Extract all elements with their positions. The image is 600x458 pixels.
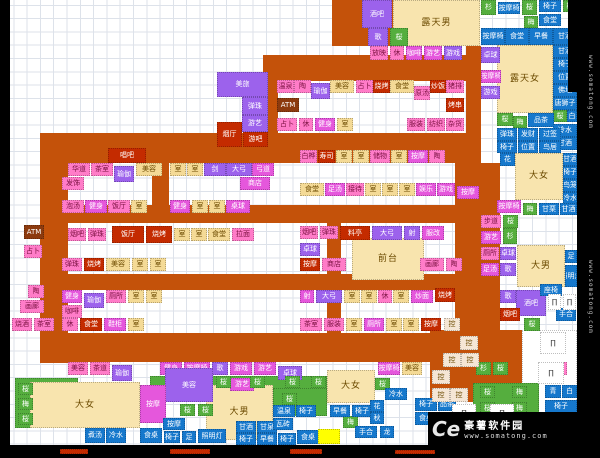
map-cell-占卜: 占卜 [24, 245, 42, 258]
map-cell-瓦砖: 瓦砖 [273, 418, 293, 430]
map-cell-厕所: 厕所 [106, 290, 126, 303]
map-cell-室: 室 [337, 118, 353, 131]
map-cell-梅: 梅 [513, 116, 527, 128]
map-cell-桜: 桜 [524, 318, 540, 331]
map-cell-桜: 桜 [480, 386, 495, 398]
map-cell-茶室: 茶室 [34, 318, 54, 331]
map-cell-画廊: 画廊 [420, 258, 444, 271]
map-cell-烟吧: 烟吧 [68, 228, 86, 241]
map-cell-寿司: 寿司 [318, 150, 335, 163]
map-cell-按摩椅: 按摩椅 [481, 70, 501, 83]
map-cell-华道: 华道 [68, 163, 90, 176]
map-cell-咖啡: 咖啡 [406, 46, 422, 60]
map-cell-椅子: 椅子 [164, 431, 180, 443]
map-cell-照明灯: 照明灯 [198, 429, 226, 443]
map-cell-弹珠: 弹珠 [88, 228, 106, 241]
map-cell-游戏: 游戏 [481, 86, 500, 99]
map-cell-桜: 桜 [503, 215, 518, 228]
map-cell-健身: 健身 [85, 200, 107, 213]
map-cell-大女: 大女 [30, 382, 140, 428]
map-cell-步道: 步道 [481, 215, 501, 228]
map-cell-剑: 剑 [204, 163, 226, 176]
map-cell-梅: 梅 [523, 203, 537, 215]
map-cell-椅子: 椅子 [539, 0, 561, 12]
map-cell-美旅: 美旅 [217, 72, 268, 97]
map-cell-唱吧: 唱吧 [108, 148, 146, 163]
map-cell-室: 室 [386, 318, 402, 331]
map-cell-烟吧: 烟吧 [300, 226, 318, 239]
map-cell-温泉: 温泉 [277, 80, 294, 93]
map-cell-咖啡: 咖啡 [62, 305, 82, 318]
map-cell-早餐: 早餐 [529, 28, 553, 45]
map-cell-食堂: 食堂 [505, 28, 529, 45]
frame-block [0, 0, 10, 458]
map-cell-足: 足 [565, 250, 577, 263]
map-cell-卓球: 卓球 [300, 243, 320, 256]
map-cell-R [395, 450, 435, 454]
map-cell-休: 休 [390, 46, 404, 60]
map-cell-游艺: 游艺 [254, 362, 276, 375]
map-cell-室: 室 [191, 228, 207, 241]
map-cell-发饰: 发饰 [62, 177, 84, 190]
map-cell-服装: 服装 [324, 318, 344, 331]
map-cell-娱乐: 娱乐 [416, 183, 436, 196]
map-cell-梅: 梅 [524, 16, 538, 28]
map-cell-厕所: 厕所 [364, 318, 384, 331]
map-cell-前台: 前台 [352, 238, 424, 280]
map-cell-室: 室 [209, 200, 225, 213]
map-cell-梅: 梅 [18, 398, 33, 410]
map-cell-画廊: 画廊 [20, 300, 44, 313]
map-cell-炒面: 炒面 [411, 290, 433, 303]
map-cell-桜: 桜 [250, 376, 265, 388]
watermark-url: www.somatong.com [464, 432, 547, 440]
map-cell-冷水: 冷水 [385, 388, 407, 400]
map-cell-游吧: 游吧 [243, 132, 268, 147]
map-cell-杉: 杉 [481, 0, 496, 15]
watermark-logo: Ce [432, 419, 460, 439]
side-watermark-url-bottom: www.somatong.com [587, 260, 594, 334]
map-cell-烧烤: 烧烤 [84, 258, 104, 271]
map-cell-室: 室 [131, 200, 147, 213]
map-cell-ATM: ATM [24, 225, 44, 239]
map-cell-健身: 健身 [62, 290, 82, 303]
map-cell-桜: 桜 [497, 113, 513, 126]
map-cell-足: 足 [182, 431, 196, 443]
map-cell-食堂: 食堂 [80, 318, 102, 331]
map-cell-室: 室 [146, 290, 162, 303]
map-cell-美容: 美容 [402, 362, 422, 375]
map-cell-按摩椅: 按摩椅 [378, 362, 400, 375]
map-cell-饭厅: 饭厅 [108, 200, 130, 213]
map-cell-白桦: 白桦 [300, 150, 317, 163]
map-cell-泡汤: 泡汤 [62, 200, 84, 213]
map-cell-按摩椅: 按摩椅 [497, 200, 521, 213]
map-cell-∏: ∏ [563, 294, 576, 310]
map-cell-室: 室 [391, 150, 407, 163]
map-cell-椅子: 椅子 [352, 405, 372, 417]
map-cell-鞋柜: 鞋柜 [104, 318, 126, 331]
map-cell-烧酒: 烧酒 [12, 318, 32, 331]
map-cell-温泉: 温泉 [273, 405, 295, 417]
map-cell-食堂: 食堂 [208, 228, 230, 241]
map-cell-控: 控 [450, 388, 468, 402]
map-cell-储物: 储物 [370, 150, 390, 163]
map-cell-食堂: 食堂 [390, 80, 414, 93]
map-cell-大女: 大女 [327, 370, 375, 403]
map-cell-原汤: 原汤 [414, 86, 430, 100]
map-cell-酒吧: 酒吧 [362, 0, 392, 28]
map-cell-弹珠: 弹珠 [62, 258, 82, 271]
map-cell-瑜伽: 瑜伽 [311, 83, 330, 99]
map-cell-控: 控 [461, 353, 479, 367]
map-cell-烟厅: 烟厅 [217, 122, 242, 147]
map-cell-足汤: 足汤 [481, 263, 499, 276]
map-cell-食堂: 食堂 [539, 14, 561, 26]
map-cell-控: 控 [432, 388, 450, 402]
map-cell-按摩: 按摩 [300, 258, 320, 271]
map-cell-ATM: ATM [277, 98, 299, 112]
map-cell-发财: 发财 [518, 128, 538, 141]
map-cell-冷水: 冷水 [106, 428, 126, 443]
map-cell-厕所: 厕所 [481, 247, 499, 260]
map-cell-R [60, 449, 88, 454]
map-cell-休: 休 [62, 318, 78, 331]
map-cell-室: 室 [170, 163, 186, 176]
map-cell-歌: 歌 [368, 28, 388, 46]
map-cell-商店: 商店 [322, 258, 346, 271]
map-cell-龙: 龙 [380, 426, 394, 438]
map-cell-过签: 过签 [539, 128, 561, 141]
map-cell-食堂: 食堂 [300, 183, 324, 196]
map-cell-按摩: 按摩 [408, 150, 428, 163]
map-cell-饭厅: 饭厅 [112, 226, 144, 243]
map-cell-桜: 桜 [216, 376, 231, 388]
map-cell-按摩: 按摩 [163, 418, 185, 430]
map-cell-桜: 桜 [18, 413, 33, 425]
map-cell-休: 休 [299, 118, 313, 131]
map-cell-室: 室 [361, 290, 377, 303]
map-cell-游戏: 游戏 [230, 362, 252, 375]
map-cell-食桌: 食桌 [297, 430, 319, 444]
map-cell-烧烤: 烧烤 [146, 226, 172, 243]
map-cell-大弓: 大弓 [226, 163, 252, 176]
map-cell-茶室: 茶室 [91, 163, 113, 176]
map-cell-游艺: 游艺 [242, 115, 268, 132]
map-cell-瑜伽: 瑜伽 [114, 166, 134, 182]
map-cell-手合: 手合 [355, 426, 377, 438]
map-cell-椅子: 椅子 [563, 166, 577, 179]
map-cell-美容: 美容 [330, 80, 354, 93]
map-cell-甘栗: 甘栗 [539, 203, 559, 215]
map-cell-歌: 歌 [500, 263, 516, 276]
map-cell-品茶: 品茶 [528, 113, 554, 127]
map-cell-游艺: 游艺 [424, 46, 442, 60]
map-cell-照明灯: 照明灯 [565, 265, 577, 287]
map-cell-陶: 陶 [446, 258, 462, 271]
map-cell-健身: 健身 [315, 118, 335, 131]
map-cell-商店: 商店 [240, 177, 270, 190]
map-cell-美容: 美容 [106, 258, 130, 271]
map-cell-椅子: 椅子 [236, 433, 256, 445]
map-cell-卓球: 卓球 [481, 47, 500, 63]
map-cell-占卜: 占卜 [277, 118, 297, 131]
map-cell-室: 室 [365, 183, 381, 196]
map-cell-青: 青 [545, 385, 561, 398]
map-cell-白: 白 [562, 385, 577, 398]
map-cell-弓道: 弓道 [252, 163, 274, 176]
map-cell-∏: ∏ [538, 362, 564, 384]
watermark-site-name: 豪薯软件园 [464, 417, 547, 432]
map-cell-美容: 美容 [165, 368, 213, 402]
map-cell-椅子: 椅子 [497, 141, 517, 153]
map-cell-烟吧: 烟吧 [500, 308, 520, 321]
map-cell-桜: 桜 [311, 376, 326, 388]
map-cell-按摩: 按摩 [457, 186, 479, 199]
map-cell-室: 室 [353, 150, 369, 163]
map-cell-占卜: 占卜 [356, 80, 373, 93]
map-cell-游艺: 游艺 [481, 231, 501, 244]
map-cell-室: 室 [382, 183, 398, 196]
map-cell-室: 室 [192, 200, 208, 213]
map-cell-桜: 桜 [493, 362, 508, 375]
map-cell-健身: 健身 [170, 200, 190, 213]
map-cell-桌球: 桌球 [226, 200, 250, 213]
map-cell-纺织: 纺织 [427, 118, 445, 131]
map-cell-梅: 梅 [512, 386, 527, 398]
map-cell-陶: 陶 [28, 285, 44, 298]
map-cell-杂货: 杂货 [446, 118, 464, 131]
map-cell-鸟笼: 鸟笼 [563, 179, 577, 192]
map-cell-控: 控 [432, 370, 450, 384]
map-cell-桜: 桜 [180, 404, 195, 416]
map-cell-桜: 桜 [285, 376, 300, 388]
map-cell-桜: 桜 [522, 0, 537, 15]
onsen-map: 露天男露天女大女大男前台大女大男大女美旅弹珠游艺烟厅游吧唱吧温泉陶瑜伽美容占卜烧… [0, 0, 600, 458]
map-cell-美容: 美容 [136, 163, 162, 176]
map-cell-陶: 陶 [294, 80, 311, 93]
map-cell-花: 花 [500, 153, 515, 166]
corridor-segment [327, 223, 341, 333]
map-cell-椅子: 椅子 [278, 433, 296, 445]
map-cell-桜: 桜 [390, 28, 408, 46]
map-cell-甘酒: 甘酒 [563, 153, 577, 166]
map-cell-按摩椅: 按摩椅 [481, 28, 505, 45]
map-cell-室: 室 [403, 318, 419, 331]
map-cell-烤串: 烤串 [446, 98, 464, 112]
map-cell-拉面: 拉面 [232, 228, 254, 241]
map-cell-茶道: 茶道 [90, 362, 110, 375]
map-cell-R [170, 449, 210, 454]
map-cell-游戏: 游戏 [437, 183, 455, 196]
map-cell-弹珠: 弹珠 [497, 128, 517, 141]
map-cell-料亭: 料亭 [340, 226, 370, 240]
map-cell-接待: 接待 [346, 183, 364, 196]
map-cell-弹珠: 弹珠 [242, 97, 268, 115]
map-cell-室: 室 [336, 150, 352, 163]
map-cell-YL [318, 429, 340, 444]
map-cell-大弓: 大弓 [372, 226, 402, 240]
map-cell-服装: 服装 [407, 118, 425, 131]
map-cell-煮汤: 煮汤 [85, 428, 105, 443]
map-cell-鸟居: 鸟居 [539, 141, 561, 153]
map-cell-室: 室 [393, 290, 409, 303]
map-cell-放映: 放映 [370, 46, 388, 60]
map-cell-射: 射 [300, 290, 314, 303]
map-cell-桜: 桜 [553, 110, 567, 122]
map-cell-大女: 大女 [515, 153, 563, 200]
map-cell-早餐: 早餐 [257, 433, 277, 445]
map-cell-室: 室 [399, 183, 415, 196]
map-cell-歌: 歌 [212, 362, 228, 375]
map-cell-室: 室 [346, 318, 362, 331]
map-cell-足汤: 足汤 [325, 183, 345, 196]
map-cell-唐狮子: 唐狮子 [553, 97, 577, 110]
map-cell-按摩: 按摩 [421, 318, 441, 331]
map-cell-猪排: 猪排 [446, 80, 464, 93]
map-cell-瑜伽: 瑜伽 [84, 293, 104, 308]
map-cell-室: 室 [128, 290, 144, 303]
map-cell-控: 控 [443, 353, 461, 367]
map-cell-休: 休 [378, 290, 392, 303]
map-cell-大男: 大男 [517, 245, 565, 287]
map-cell-烧烤: 烧烤 [435, 288, 455, 302]
map-cell-室: 室 [150, 258, 166, 271]
side-watermark-url-top: www.somatong.com [587, 55, 594, 129]
map-cell-椅子: 椅子 [296, 405, 316, 417]
map-cell-室: 室 [174, 228, 190, 241]
map-cell-游戏: 游戏 [444, 46, 462, 60]
map-cell-服改: 服改 [422, 226, 444, 240]
map-cell-瑜伽: 瑜伽 [112, 365, 132, 381]
map-cell-早餐: 早餐 [330, 405, 350, 417]
map-cell-杉: 杉 [503, 228, 517, 244]
map-cell-室: 室 [344, 290, 360, 303]
map-cell-大弓: 大弓 [316, 290, 342, 303]
map-cell-食桌: 食桌 [140, 428, 162, 443]
map-cell-露天女: 露天女 [497, 45, 553, 113]
map-cell-美容: 美容 [68, 362, 88, 375]
map-cell-甘酒: 甘酒 [236, 421, 256, 433]
map-cell-位置: 位置 [518, 141, 538, 153]
map-cell-桜: 桜 [18, 383, 33, 395]
map-cell-甘酒: 甘酒 [560, 203, 577, 215]
corridor-segment [40, 333, 481, 362]
map-cell-按摩椅: 按摩椅 [498, 2, 520, 14]
map-cell-茶室: 茶室 [300, 318, 322, 331]
map-cell-室: 室 [128, 318, 144, 331]
map-cell-控: 控 [460, 336, 478, 350]
map-cell-∏: ∏ [548, 294, 561, 310]
map-cell-桜: 桜 [282, 393, 297, 405]
map-cell-烧烤: 烧烤 [373, 80, 390, 93]
map-cell-卓球: 卓球 [500, 247, 516, 260]
map-cell-炒饭: 炒饭 [430, 80, 446, 93]
map-cell-控: 控 [444, 318, 460, 331]
map-cell-室: 室 [187, 163, 203, 176]
map-cell-花: 花 [370, 400, 384, 412]
map-cell-歌: 歌 [500, 290, 516, 303]
map-cell-室: 室 [132, 258, 148, 271]
watermark-panel: Ce 豪薯软件园 www.somatong.com [428, 412, 577, 445]
map-cell-秋: 秋 [370, 412, 384, 424]
map-cell-白: 白 [567, 110, 577, 122]
map-cell-射: 射 [404, 226, 420, 240]
map-cell-桜: 桜 [198, 404, 213, 416]
map-cell-R [290, 449, 322, 454]
map-cell-弹珠: 弹珠 [320, 226, 338, 239]
map-cell-∏: ∏ [540, 332, 566, 354]
map-cell-陶: 陶 [429, 150, 445, 163]
